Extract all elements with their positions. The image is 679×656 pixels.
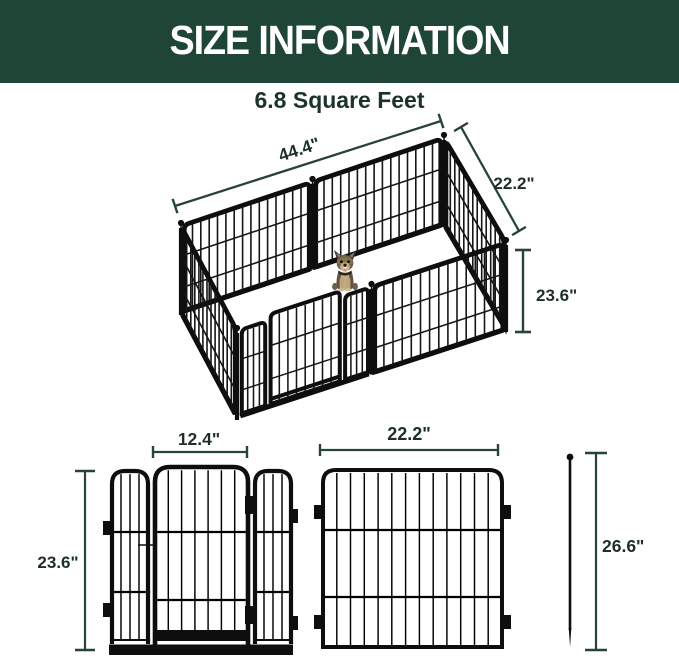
svg-text:22.2": 22.2"	[387, 424, 431, 444]
svg-text:23.6": 23.6"	[37, 553, 78, 572]
svg-text:12.4": 12.4"	[178, 429, 220, 449]
svg-text:22.2": 22.2"	[493, 174, 534, 193]
svg-text:23.6": 23.6"	[536, 286, 577, 305]
svg-text:26.6": 26.6"	[602, 536, 644, 556]
